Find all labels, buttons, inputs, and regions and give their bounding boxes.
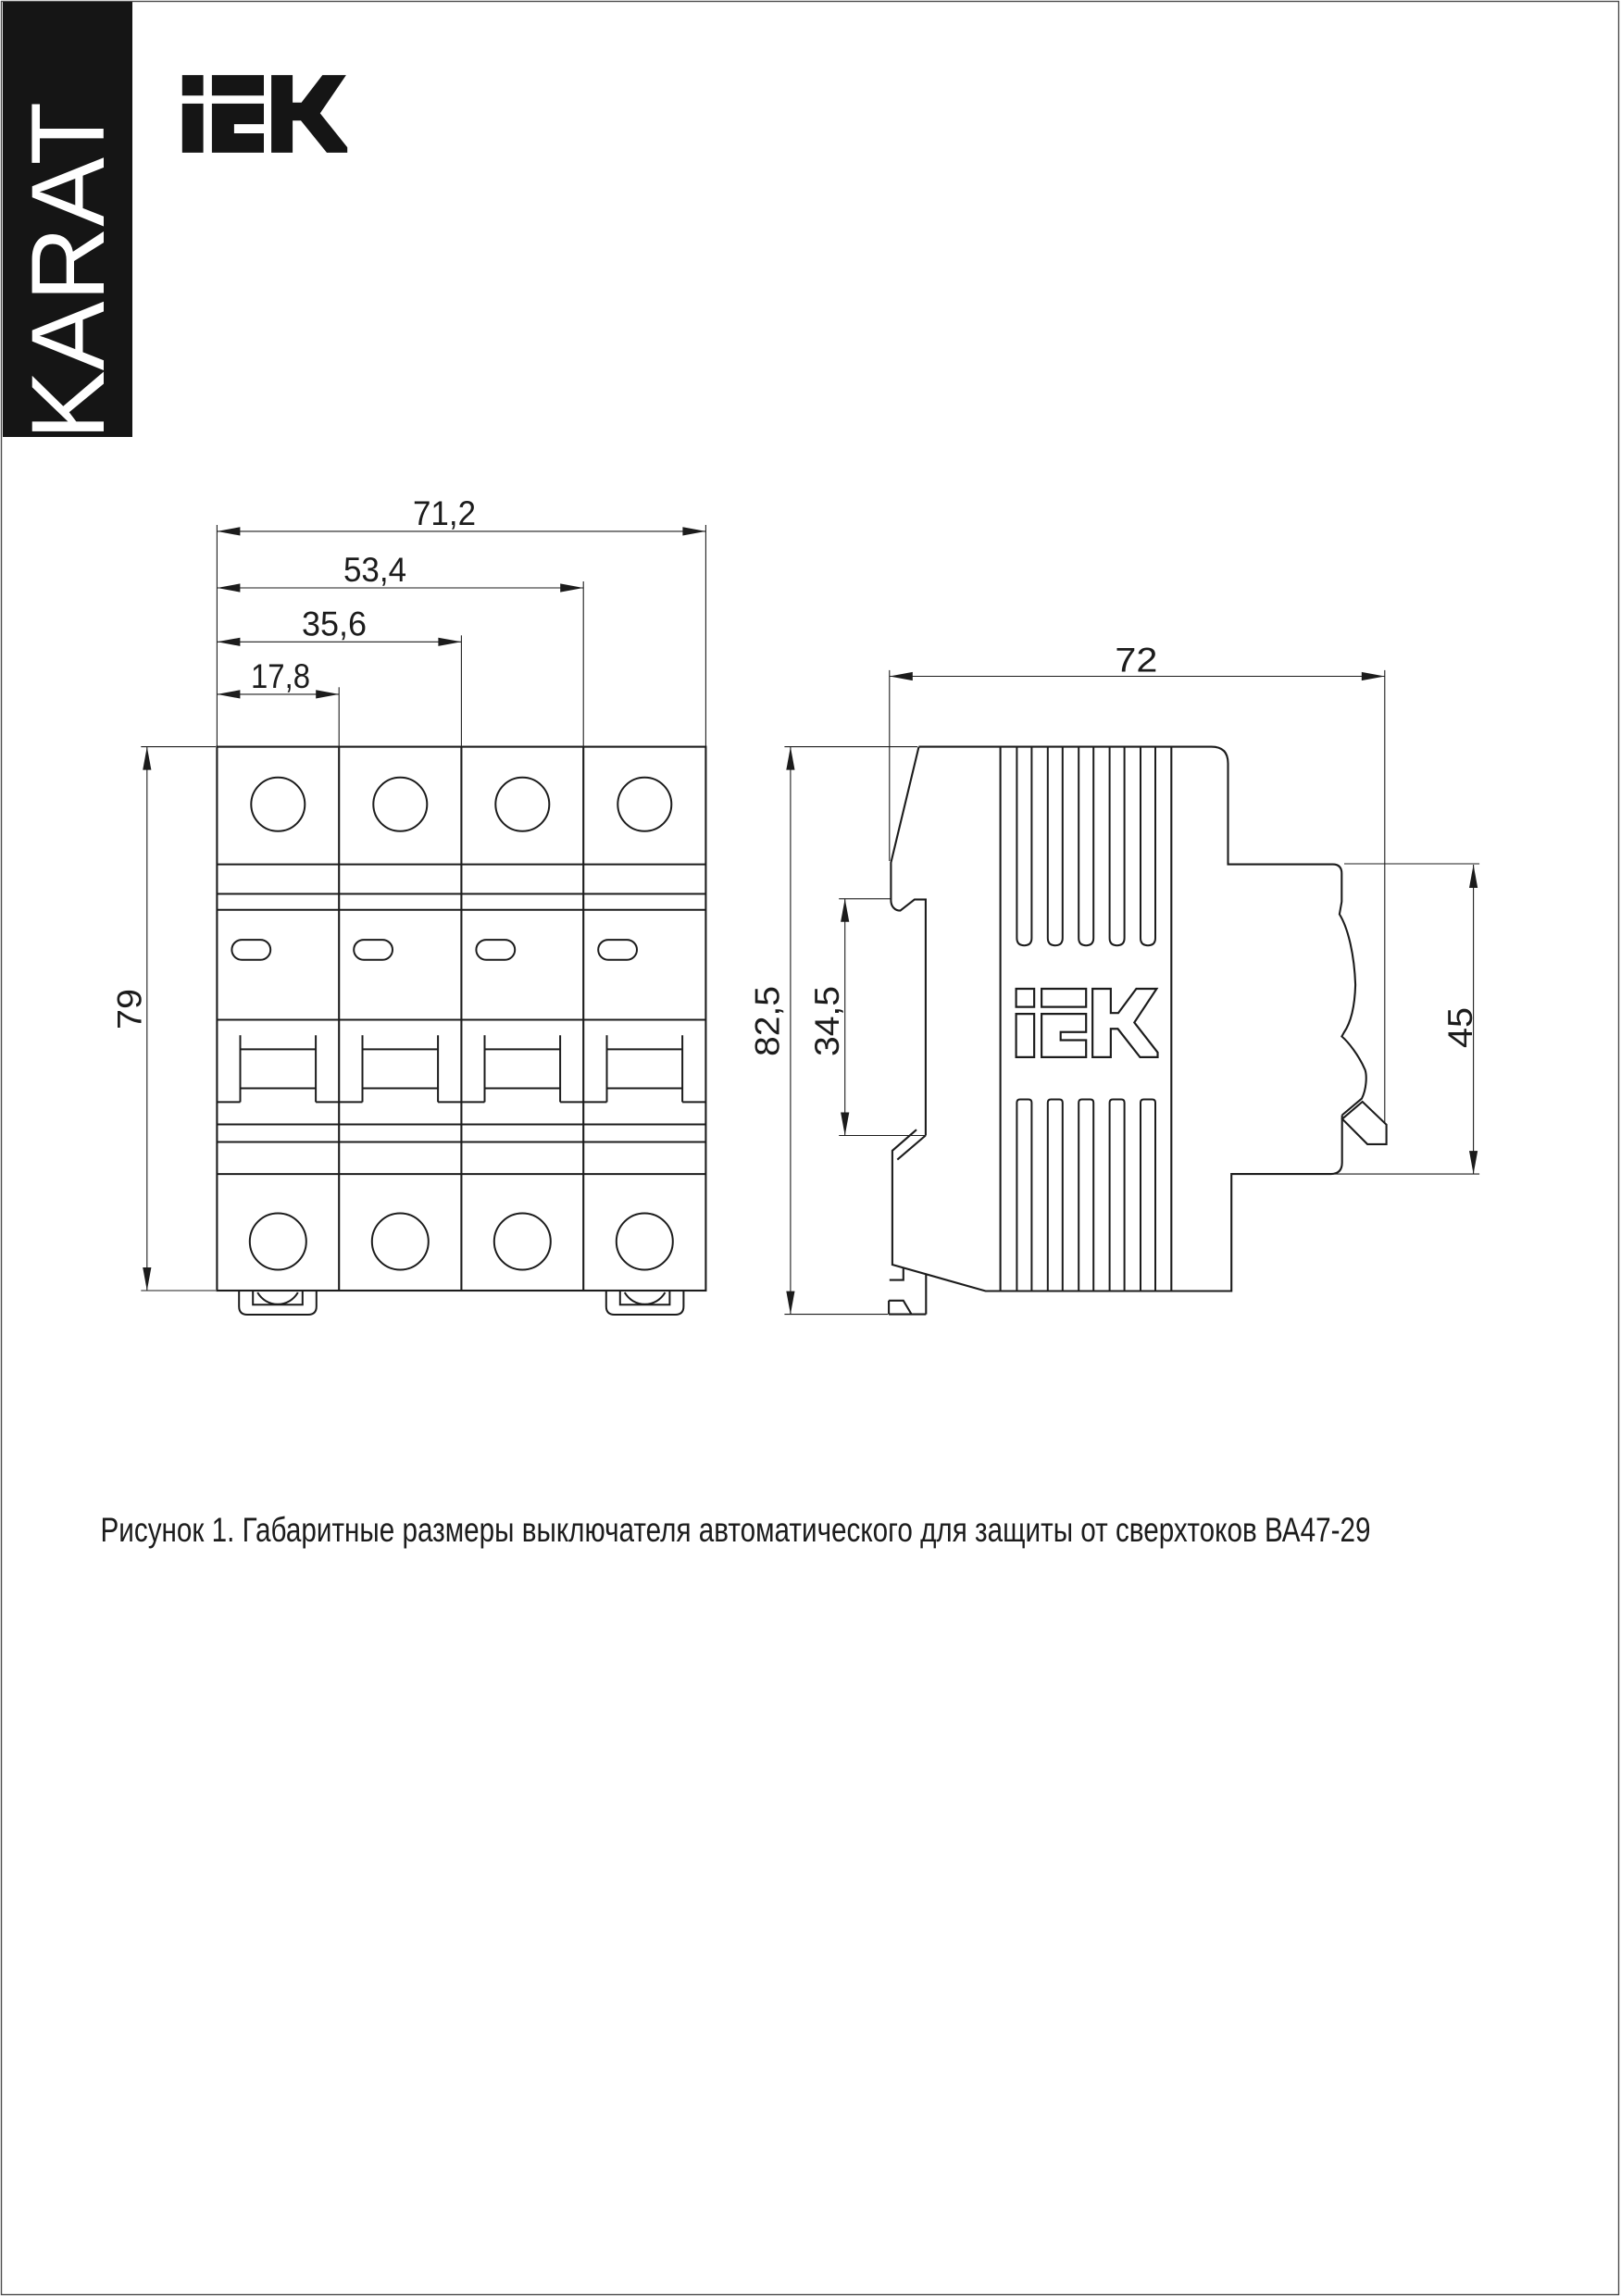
svg-text:35,6: 35,6 bbox=[302, 605, 367, 643]
svg-text:Рисунок 1. Габаритные размеры: Рисунок 1. Габаритные размеры выключател… bbox=[101, 1511, 1371, 1549]
svg-text:53,4: 53,4 bbox=[343, 551, 406, 589]
svg-text:79: 79 bbox=[111, 989, 149, 1029]
svg-text:45: 45 bbox=[1441, 1007, 1479, 1048]
svg-text:KARAT: KARAT bbox=[10, 102, 126, 440]
svg-text:82,5: 82,5 bbox=[749, 986, 787, 1056]
svg-text:71,2: 71,2 bbox=[413, 494, 476, 532]
svg-text:17,8: 17,8 bbox=[251, 657, 310, 695]
svg-text:34,5: 34,5 bbox=[808, 986, 846, 1056]
svg-text:72: 72 bbox=[1115, 642, 1157, 680]
